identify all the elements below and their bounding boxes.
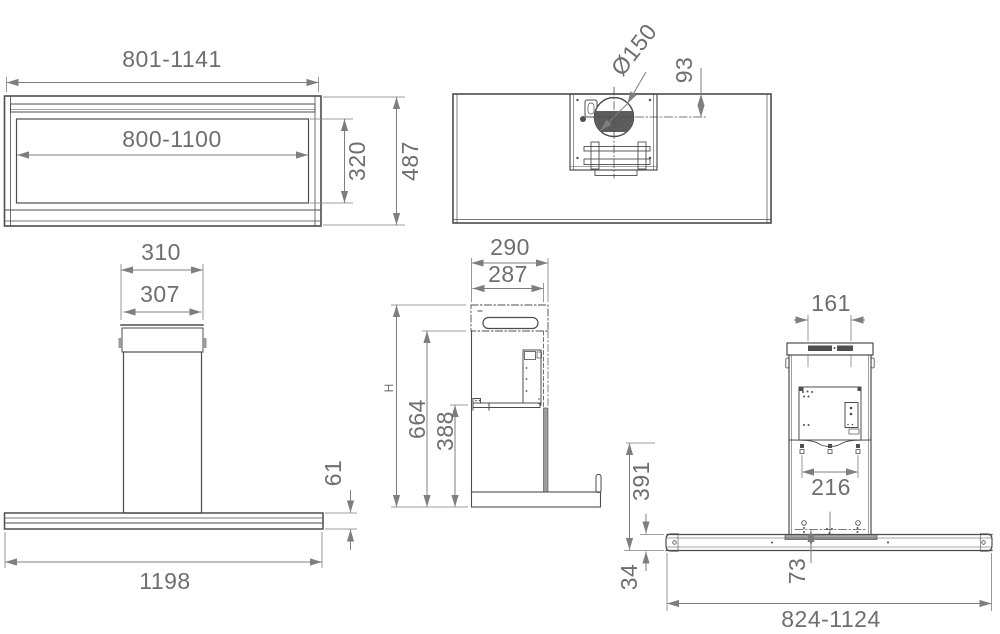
- dim-duct-offset: 93: [671, 57, 697, 84]
- dim-total-height: 487: [397, 141, 423, 181]
- dim-total-height-label: H: [382, 384, 396, 393]
- view-side: 290 287 H 664 388: [382, 234, 601, 507]
- dim-chimney-top-width: 310: [141, 239, 181, 265]
- cable-gland: [580, 116, 586, 122]
- view-top: Ø150 93: [453, 19, 771, 223]
- technical-drawing-page: 801-1141 800-1100 320 487: [0, 0, 1000, 634]
- dim-inner-depth: 287: [488, 261, 528, 287]
- dim-outer-width: 801-1141: [122, 46, 222, 72]
- dim-canopy-thickness: 61: [320, 460, 346, 487]
- chimney-body: [124, 352, 202, 513]
- vent-slot: [483, 318, 538, 329]
- dim-depth: 290: [490, 234, 530, 260]
- mount-slot-left: [808, 346, 832, 352]
- dim-inner-width: 800-1100: [122, 126, 222, 152]
- mount-slot-right: [837, 346, 853, 352]
- hood-dimension-drawing: 801-1141 800-1100 320 487: [0, 0, 1000, 634]
- chimney-upper-band: [122, 328, 203, 352]
- canopy-side: [472, 492, 601, 507]
- dim-mount-width: 216: [811, 474, 851, 500]
- dim-canopy-width: 1198: [139, 568, 190, 594]
- dim-base-width: 824-1124: [781, 606, 881, 632]
- dim-chimney-body-width: 307: [140, 281, 180, 307]
- dim-panel-thickness: 34: [616, 564, 642, 591]
- dim-height-body: 664: [404, 399, 430, 439]
- view-front-box: 801-1141 800-1100 320 487: [5, 46, 424, 226]
- dim-slot-width: 161: [811, 290, 851, 316]
- dim-height-lower: 388: [432, 411, 458, 451]
- shelf: [473, 403, 540, 408]
- view-front-island: 310 307 61 1198: [5, 239, 358, 594]
- dim-mount-height: 391: [628, 461, 654, 501]
- visor-strip: [11, 104, 316, 112]
- canopy-front: [5, 513, 324, 529]
- dim-inner-height: 320: [344, 141, 370, 181]
- view-rear: 161 216 391 34 73 824-1124: [616, 290, 992, 632]
- dim-hole-offset: 73: [784, 558, 810, 585]
- dim-duct-diameter: Ø150: [606, 19, 662, 81]
- chimney-flange: [785, 535, 877, 540]
